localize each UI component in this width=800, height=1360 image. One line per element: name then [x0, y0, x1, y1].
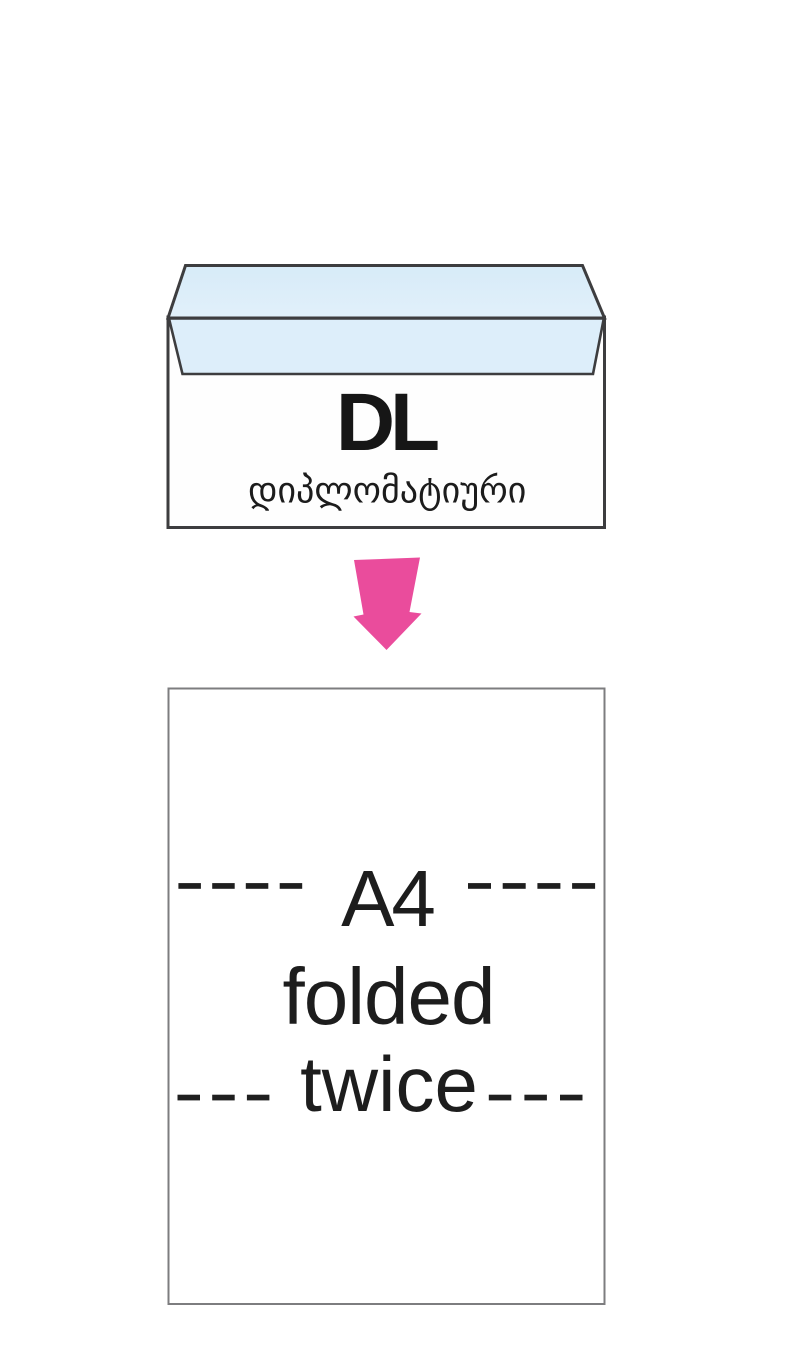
svg-text:DL: DL: [336, 377, 438, 468]
svg-text:A4: A4: [341, 854, 434, 943]
svg-text:folded: folded: [283, 952, 495, 1041]
svg-text:twice: twice: [300, 1040, 478, 1128]
